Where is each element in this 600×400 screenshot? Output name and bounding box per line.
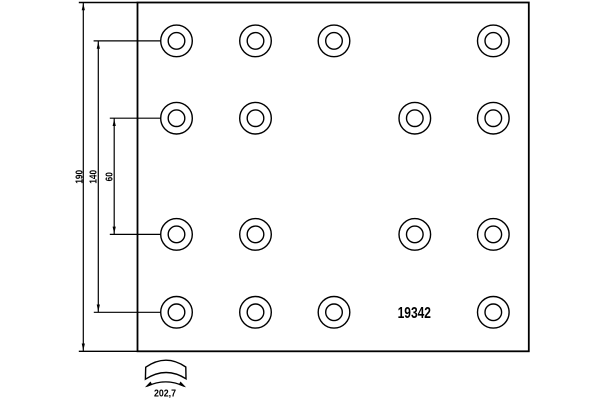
svg-text:190: 190: [74, 170, 85, 184]
svg-text:60: 60: [104, 172, 115, 181]
svg-text:19342: 19342: [398, 303, 431, 321]
svg-text:202,7: 202,7: [154, 387, 176, 399]
svg-text:140: 140: [88, 170, 99, 184]
